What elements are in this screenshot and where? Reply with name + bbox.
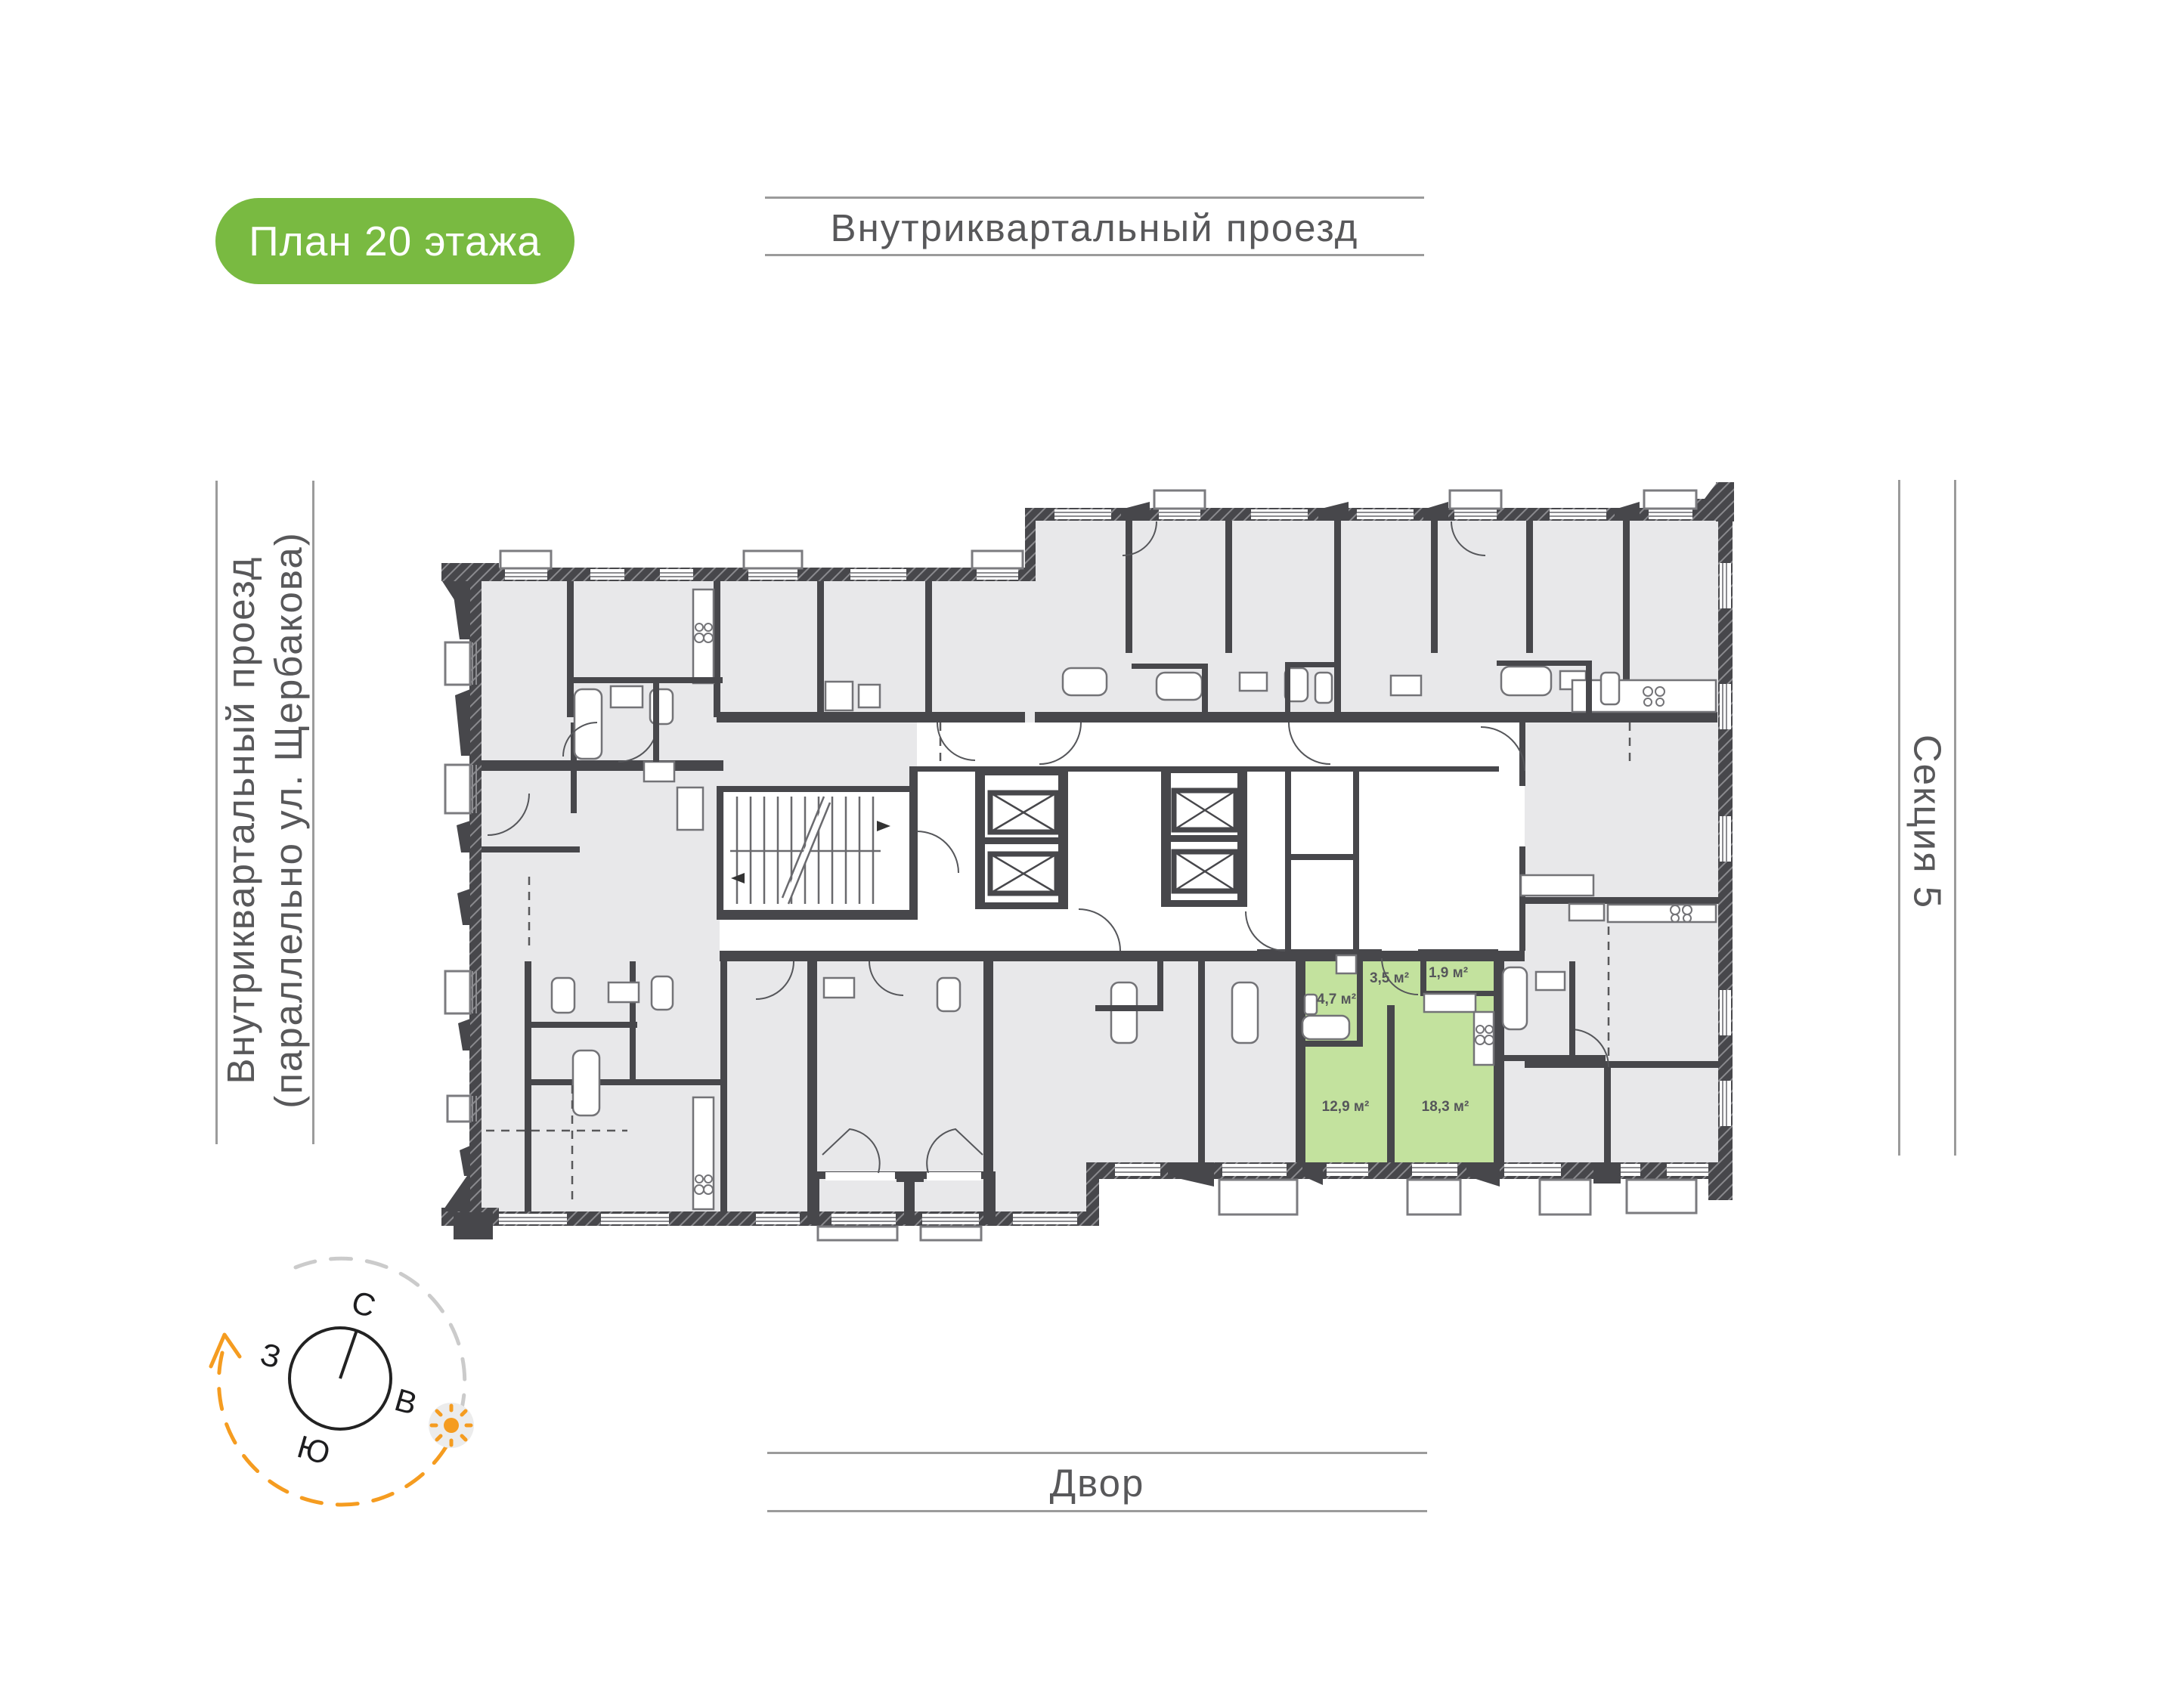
svg-text:3,5 м²: 3,5 м²: [1370, 970, 1409, 986]
svg-text:18,3 м²: 18,3 м²: [1422, 1099, 1469, 1115]
svg-text:12,9 м²: 12,9 м²: [1322, 1099, 1370, 1115]
svg-text:1,9 м²: 1,9 м²: [1429, 965, 1468, 981]
svg-text:4,7 м²: 4,7 м²: [1317, 992, 1356, 1007]
